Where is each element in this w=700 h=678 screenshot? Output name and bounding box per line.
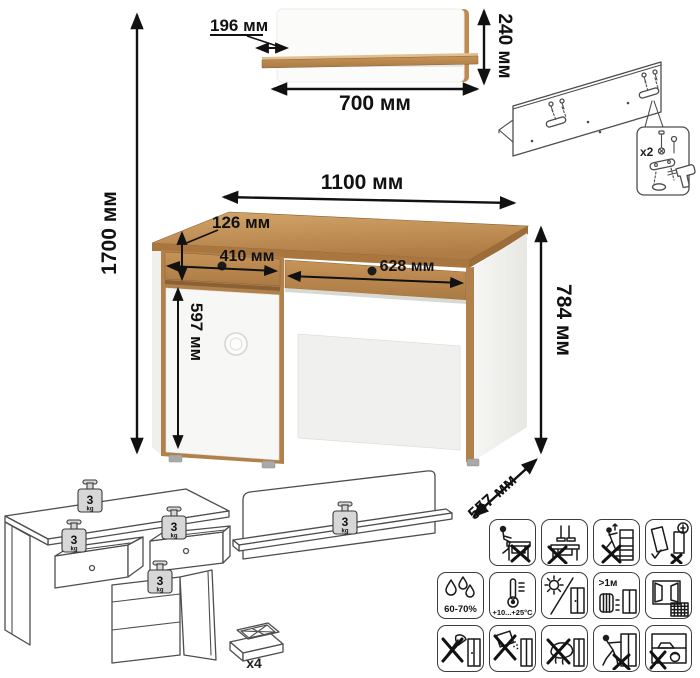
assembly-orientation-icon bbox=[647, 521, 690, 564]
care-icon-no-sitting-on-desk bbox=[489, 519, 536, 566]
no-sunlight-icon bbox=[543, 574, 586, 617]
right-leg-wood-edge bbox=[466, 267, 474, 462]
svg-text:>1м: >1м bbox=[599, 578, 618, 589]
no-sitting-icon bbox=[491, 521, 534, 564]
no-wet-cleaning-icon bbox=[543, 627, 586, 670]
svg-text:3: 3 bbox=[171, 520, 178, 534]
care-icon-no-wet-cleaning bbox=[541, 625, 588, 672]
care-icon-no-standing-on-desk bbox=[541, 519, 588, 566]
shelf-depth-label: 196 мм bbox=[210, 16, 268, 35]
ventilation-icon bbox=[647, 574, 690, 617]
dim-shelf-depth: 196 мм bbox=[210, 16, 287, 48]
bracket-count-label: x2 bbox=[640, 145, 654, 159]
lineart-desk-loads: 3 kg 3 kg 3 kg 3 kg bbox=[5, 480, 230, 663]
care-icon-temperature-range: +10...+25°C bbox=[489, 572, 536, 619]
shelf-back-panel bbox=[277, 9, 464, 82]
care-icon-ventilation bbox=[645, 572, 692, 619]
door-height-label: 597 мм bbox=[187, 303, 206, 361]
no-sharp-tools-icon bbox=[439, 627, 482, 670]
care-icon-keep-distance-from-heaters: >1м bbox=[593, 572, 640, 619]
svg-text:+10...+25°C: +10...+25°C bbox=[492, 608, 533, 617]
svg-text:kg: kg bbox=[86, 507, 93, 513]
wall-shelf-photo bbox=[262, 9, 478, 82]
dim-desk-height: 784 мм bbox=[541, 228, 575, 452]
care-icon-no-abrasive-cleaners bbox=[489, 625, 536, 672]
shelf-width-label: 700 мм bbox=[339, 92, 411, 115]
right-leg-panel bbox=[474, 233, 527, 461]
hardware-callout: x2 bbox=[637, 127, 689, 195]
heater-distance-icon: >1м bbox=[595, 574, 638, 617]
svg-text:3: 3 bbox=[342, 515, 349, 529]
no-climbing-icon bbox=[595, 521, 638, 564]
desk-foot bbox=[467, 459, 479, 466]
care-icon-no-heavy-hot-objects bbox=[645, 625, 692, 672]
cabinet-door bbox=[166, 288, 279, 460]
care-icon-no-dragging bbox=[593, 625, 640, 672]
la-left-panel bbox=[5, 522, 30, 645]
feet-count-label: x4 bbox=[246, 655, 262, 671]
care-icon-humidity-range: 60-70% bbox=[437, 572, 484, 619]
shelf-mounting-diagram: x2 bbox=[499, 62, 695, 195]
desk-height-label: 784 мм bbox=[552, 284, 575, 356]
desk-width-label: 1100 мм bbox=[321, 171, 403, 194]
temperature-icon: +10...+25°C bbox=[491, 574, 534, 617]
total-height-label: 1700 мм bbox=[98, 191, 121, 275]
right-drawer-knob bbox=[368, 267, 377, 276]
furniture-dimension-diagram: 1700 мм 196 мм 240 мм 700 мм bbox=[0, 0, 700, 678]
dim-desk-depth: 557 мм bbox=[464, 460, 536, 523]
modesty-panel bbox=[298, 334, 460, 450]
pedestal-left-side bbox=[152, 251, 161, 455]
shelf-height-label: 240 мм bbox=[494, 13, 515, 78]
lineart-shelf-load: 3 kg bbox=[233, 471, 452, 559]
grid-spacer bbox=[437, 519, 484, 566]
svg-text:60-70%: 60-70% bbox=[444, 604, 477, 615]
no-standing-icon bbox=[543, 521, 586, 564]
desk-foot bbox=[169, 455, 182, 462]
foot-detail: x4 bbox=[230, 623, 283, 671]
svg-text:3: 3 bbox=[157, 574, 164, 588]
care-icon-assembly-orientation bbox=[645, 519, 692, 566]
load-desk-top: 3 kg bbox=[78, 480, 102, 513]
drawer-height-label: 126 мм bbox=[212, 213, 270, 232]
no-heavy-objects-icon bbox=[647, 627, 690, 670]
left-drawer-width-label: 410 мм bbox=[220, 248, 275, 265]
dim-shelf-height: 240 мм bbox=[484, 11, 515, 83]
desk-photo bbox=[152, 212, 528, 468]
dim-total-height: 1700 мм bbox=[98, 15, 137, 452]
desk-depth-label: 557 мм bbox=[464, 470, 520, 523]
no-dragging-icon bbox=[595, 627, 638, 670]
svg-text:kg: kg bbox=[341, 529, 348, 535]
svg-text:kg: kg bbox=[170, 534, 177, 540]
svg-text:3: 3 bbox=[71, 533, 78, 547]
desk-foot bbox=[262, 461, 275, 468]
svg-text:kg: kg bbox=[156, 588, 163, 594]
care-icon-avoid-direct-sunlight bbox=[541, 572, 588, 619]
svg-text:kg: kg bbox=[70, 547, 77, 553]
humidity-icon: 60-70% bbox=[439, 574, 482, 617]
care-icon-no-sharp-tools bbox=[437, 625, 484, 672]
dim-desk-width: 1100 мм bbox=[224, 171, 514, 203]
no-abrasives-icon bbox=[491, 627, 534, 670]
dim-shelf-width: 700 мм bbox=[273, 89, 477, 115]
door-handle bbox=[225, 333, 247, 355]
care-icon-grid: 60-70% +10...+25°C >1м bbox=[437, 519, 692, 672]
svg-text:3: 3 bbox=[87, 493, 94, 507]
right-drawer-width-label: 628 мм bbox=[380, 258, 435, 275]
care-icon-no-climbing-on-drawers bbox=[593, 519, 640, 566]
